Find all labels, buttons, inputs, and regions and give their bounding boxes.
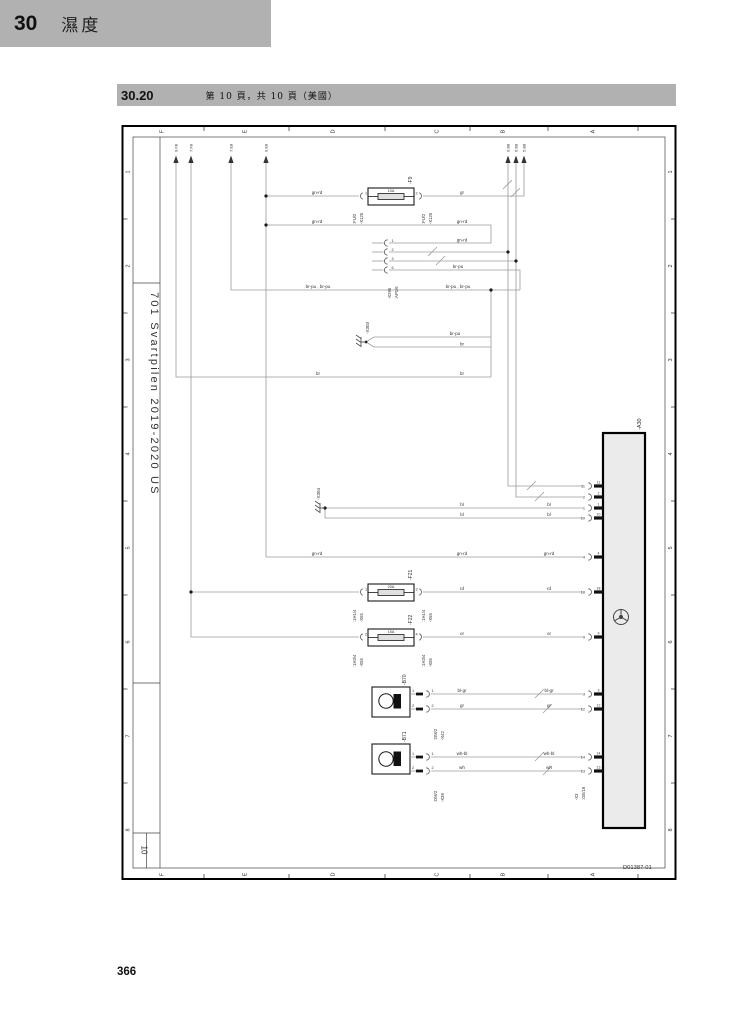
connector-arc — [426, 691, 429, 697]
svg-text:13: 13 — [597, 765, 601, 769]
svg-text:1: 1 — [583, 507, 585, 511]
title-block — [133, 137, 160, 868]
connector-arc — [361, 589, 363, 595]
connector-arc — [588, 589, 591, 595]
fuse-f21: 20A -F21 1 3 :1H1/4 -X55 :1H1/4 -X55 — [352, 570, 433, 623]
connector-arc — [588, 634, 591, 640]
svg-text:5: 5 — [125, 546, 131, 549]
svg-text:wh: wh — [546, 765, 552, 770]
svg-text:1: 1 — [365, 192, 367, 196]
fuse-label: -F21 — [408, 570, 414, 581]
svg-text:B: B — [501, 872, 507, 876]
svg-text:9.F8: 9.F8 — [174, 143, 179, 152]
svg-text:bl: bl — [547, 512, 551, 517]
svg-text:2: 2 — [431, 766, 433, 770]
svg-text:2: 2 — [598, 491, 600, 495]
connector-arc — [588, 754, 591, 760]
svg-text:wh: wh — [459, 765, 465, 770]
svg-text:rd: rd — [460, 586, 464, 591]
svg-text:5: 5 — [668, 546, 674, 549]
svg-text:7: 7 — [125, 734, 131, 737]
svg-text:3: 3 — [598, 688, 600, 692]
svg-text:7.F8: 7.F8 — [189, 143, 194, 152]
svg-text:14: 14 — [597, 751, 601, 755]
wiring-diagram: F E D C B A F E D C B A 1 2 3 4 5 6 7 8 — [0, 0, 730, 1036]
page-number: 366 — [117, 966, 136, 978]
svg-text:2: 2 — [415, 192, 417, 196]
svg-text:1: 1 — [431, 689, 433, 693]
svg-text:10: 10 — [581, 517, 585, 521]
svg-text::1H1/4: :1H1/4 — [352, 609, 357, 622]
svg-text:D: D — [331, 872, 337, 876]
svg-text:-X125: -X125 — [359, 212, 364, 224]
fuse-label: -F22 — [408, 615, 414, 626]
svg-text:gn-rd: gn-rd — [457, 219, 468, 224]
svg-text:7: 7 — [668, 734, 674, 737]
model-text: 701 Svartpilen 2019-2020 US — [148, 292, 160, 496]
svg-text:7.E8: 7.E8 — [229, 143, 234, 152]
svg-text:B: B — [501, 129, 507, 133]
svg-text::AP1/6: :AP1/6 — [394, 286, 399, 299]
svg-text:6: 6 — [392, 266, 394, 270]
svg-text:8: 8 — [668, 828, 674, 831]
offpage-connectors: 9.F8 7.F8 7.E8 9.E8 9.B8 6.B8 5.B8 — [173, 143, 526, 163]
wires — [176, 163, 583, 775]
svg-text:gr: gr — [547, 703, 552, 708]
svg-text:2: 2 — [412, 766, 414, 770]
svg-text::1H3/4: :1H3/4 — [352, 654, 357, 667]
svg-text:2: 2 — [412, 704, 414, 708]
svg-text:3: 3 — [583, 693, 585, 697]
lamp-label: -B71 — [402, 731, 408, 742]
connector-arc — [384, 258, 387, 264]
fuse-rating: 15A — [388, 630, 395, 634]
a30-connector-pin: :GE/18 — [581, 786, 586, 800]
svg-text:2: 2 — [365, 633, 367, 637]
wire-junctions — [189, 194, 517, 593]
connector-arc — [588, 691, 591, 697]
connector-arc — [588, 706, 591, 712]
sheet-number: 10 — [140, 846, 149, 855]
connector-arc — [419, 193, 421, 199]
svg-text:wh-bl: wh-bl — [457, 751, 468, 756]
svg-text:2: 2 — [668, 264, 674, 267]
svg-text:-X42: -X42 — [440, 730, 445, 740]
svg-text:10: 10 — [597, 512, 601, 516]
fuse-rating: 20A — [388, 585, 395, 589]
svg-text:bl-gr: bl-gr — [544, 688, 554, 693]
svg-text:D: D — [331, 129, 337, 133]
svg-text:5.B8: 5.B8 — [522, 143, 527, 152]
svg-text:9.B8: 9.B8 — [506, 143, 511, 152]
svg-text:rd: rd — [547, 586, 551, 591]
connector-arc — [384, 267, 387, 273]
svg-text:or: or — [460, 631, 465, 636]
svg-text:gr: gr — [460, 190, 465, 195]
svg-text:3: 3 — [415, 588, 417, 592]
svg-text:2: 2 — [392, 248, 394, 252]
svg-text:1: 1 — [412, 752, 414, 756]
svg-text:F: F — [160, 129, 166, 133]
connector-arc — [384, 240, 387, 246]
ground-x304: -X304 — [315, 487, 325, 513]
svg-text:6.B8: 6.B8 — [514, 143, 519, 152]
ground-label: -X304 — [316, 487, 321, 500]
svg-text:2: 2 — [583, 496, 585, 500]
connector-arc — [384, 249, 387, 255]
control-unit-a30: -A30 — [574, 418, 645, 828]
drawing-number: D01387-01 — [623, 865, 652, 871]
svg-text:2: 2 — [431, 704, 433, 708]
svg-text:-X295: -X295 — [387, 287, 392, 299]
manual-page: 30 濕度 30.20 第 10 頁，共 10 頁（美國） — [0, 0, 730, 1036]
svg-text:-X55: -X55 — [428, 657, 433, 667]
svg-text:br: br — [460, 342, 465, 347]
svg-text:3: 3 — [668, 358, 674, 361]
svg-text:C: C — [435, 129, 441, 133]
connector-arc — [426, 768, 429, 774]
svg-text:bl: bl — [460, 512, 464, 517]
svg-text:wh-bl: wh-bl — [544, 751, 555, 756]
svg-text:-X55: -X55 — [428, 612, 433, 622]
svg-text:gn-rd: gn-rd — [457, 551, 468, 556]
connector-arc — [588, 494, 591, 500]
fuse-label: -F9 — [408, 176, 414, 184]
ground-label: -X303 — [365, 321, 370, 334]
connector-arc — [588, 483, 591, 489]
svg-text:A: A — [591, 129, 597, 133]
svg-text:4: 4 — [415, 633, 417, 637]
svg-text:-X55: -X55 — [359, 612, 364, 622]
connector-arc — [588, 768, 591, 774]
connector-arc — [419, 634, 421, 640]
svg-text:1: 1 — [125, 170, 131, 173]
svg-text:gn-rd: gn-rd — [312, 219, 323, 224]
svg-text:13: 13 — [581, 770, 585, 774]
svg-text:4: 4 — [598, 551, 600, 555]
a30-connector-label: -X3 — [574, 793, 579, 800]
unit-label: -A30 — [637, 418, 643, 430]
svg-text:E: E — [243, 872, 249, 876]
svg-text:gn-rd: gn-rd — [312, 190, 323, 195]
connector-arc — [426, 754, 429, 760]
lamp-b70: -B70 1 1 2 2 :DM/2 -X42 — [372, 674, 445, 740]
connector-arc — [426, 706, 429, 712]
svg-text:18: 18 — [597, 586, 601, 590]
lamp-label: -B70 — [402, 674, 408, 685]
svg-text:E: E — [243, 129, 249, 133]
svg-text:1: 1 — [431, 752, 433, 756]
svg-text:3: 3 — [392, 257, 394, 261]
svg-text:A: A — [591, 872, 597, 876]
fuse-rating: 10A — [388, 189, 395, 193]
svg-text::FU/2: :FU/2 — [352, 213, 357, 224]
svg-text:1: 1 — [392, 239, 394, 243]
svg-text:bl-gr: bl-gr — [457, 688, 467, 693]
fuse-f9: 10A -F9 1 2 :FU/2 -X125 :FU/2 -X125 — [352, 176, 433, 224]
svg-text:-X39: -X39 — [440, 792, 445, 802]
svg-text:gn-rd: gn-rd — [312, 551, 323, 556]
lamp-b71: -B71 1 1 2 2 :DM/2 -X39 — [372, 731, 445, 802]
connector-arc — [588, 515, 591, 521]
svg-text:bl: bl — [547, 502, 551, 507]
connector-arc — [361, 193, 363, 199]
svg-text:18: 18 — [581, 591, 585, 595]
svg-text::1H1/4: :1H1/4 — [421, 609, 426, 622]
svg-text:-X55: -X55 — [359, 657, 364, 667]
svg-text:br: br — [460, 371, 465, 376]
svg-text:6: 6 — [125, 640, 131, 643]
connector-arc — [361, 634, 363, 640]
svg-text::FU/2: :FU/2 — [421, 213, 426, 224]
svg-text:11: 11 — [581, 485, 585, 489]
connector-arc — [588, 554, 591, 560]
svg-text:1: 1 — [365, 588, 367, 592]
svg-text:9: 9 — [598, 631, 600, 635]
svg-text:br: br — [316, 371, 321, 376]
svg-text:4: 4 — [668, 452, 674, 455]
svg-text:1: 1 — [598, 502, 600, 506]
svg-text:1: 1 — [668, 170, 674, 173]
svg-text:9: 9 — [583, 636, 585, 640]
wire-labels: gn-rd gr gn-rd gn-rd gn-rd br-pu br-pu ,… — [306, 190, 555, 770]
svg-text:12: 12 — [581, 708, 585, 712]
a30-pins: 11 2 1 10 4 18 9 3 12 14 13 11 2 1 10 — [581, 480, 603, 774]
svg-text:4: 4 — [583, 556, 585, 560]
svg-text:bl: bl — [460, 502, 464, 507]
svg-text:gn-rd: gn-rd — [544, 551, 555, 556]
svg-text:9.E8: 9.E8 — [264, 143, 269, 152]
svg-text::1H3/4: :1H3/4 — [421, 654, 426, 667]
svg-text:4: 4 — [125, 452, 131, 455]
svg-text:14: 14 — [581, 756, 585, 760]
svg-text:6: 6 — [668, 640, 674, 643]
svg-text::DM/2: :DM/2 — [433, 790, 438, 802]
svg-text:1: 1 — [412, 689, 414, 693]
svg-text:gn-rd: gn-rd — [457, 238, 468, 243]
svg-text:2: 2 — [125, 264, 131, 267]
svg-text::DM/2: :DM/2 — [433, 728, 438, 740]
svg-text:br-pu: br-pu — [453, 264, 464, 269]
svg-text:12: 12 — [597, 703, 601, 707]
svg-text:C: C — [435, 872, 441, 876]
connector-arc — [419, 589, 421, 595]
svg-text:br-pu , br-pu: br-pu , br-pu — [446, 284, 471, 289]
svg-text:F: F — [160, 872, 166, 876]
svg-text:3: 3 — [125, 358, 131, 361]
svg-text:br-pu , br-pu: br-pu , br-pu — [306, 284, 331, 289]
svg-text:br-pu: br-pu — [450, 331, 461, 336]
svg-text:gr: gr — [460, 703, 465, 708]
svg-text:8: 8 — [125, 828, 131, 831]
svg-text:11: 11 — [597, 480, 601, 484]
svg-text:-X125: -X125 — [428, 212, 433, 224]
svg-text:or: or — [547, 631, 552, 636]
connector-arc — [588, 505, 591, 511]
